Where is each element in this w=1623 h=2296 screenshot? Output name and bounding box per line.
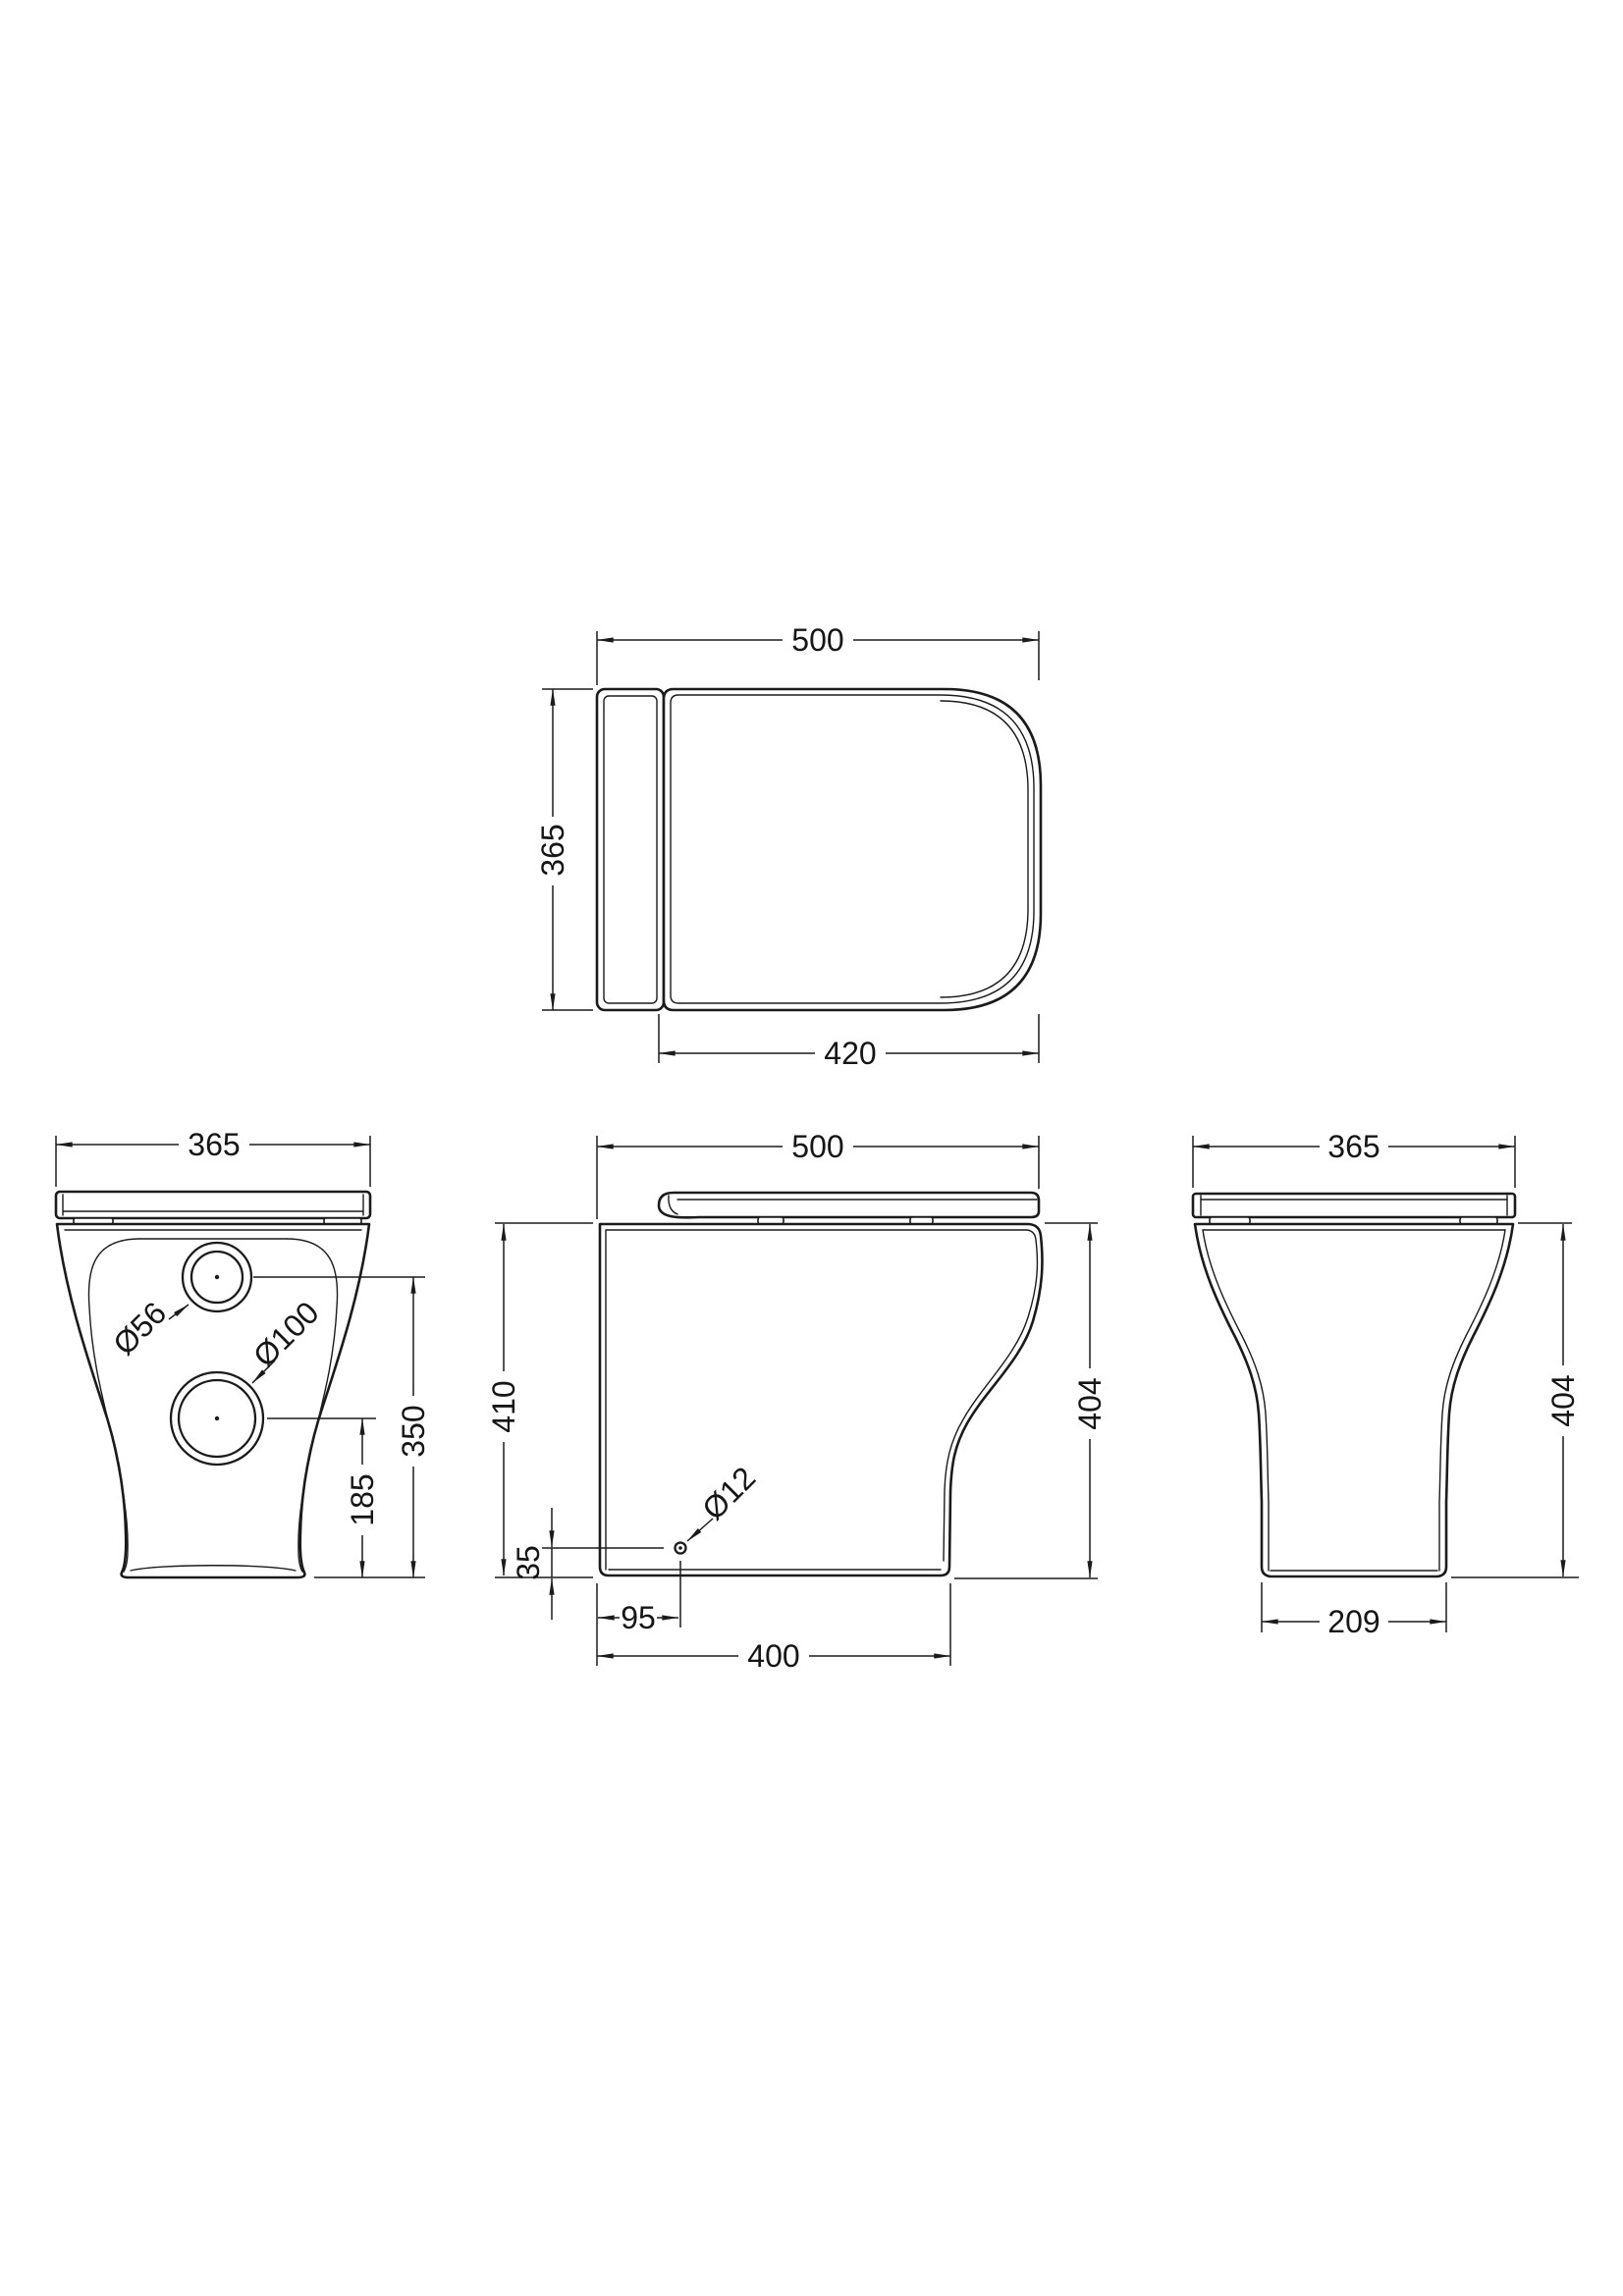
dim-front-width: 365: [1193, 1129, 1515, 1188]
inlet-center-dot: [215, 1275, 219, 1279]
side-view-object: [600, 1193, 1042, 1575]
dim-label-top-seat: 420: [824, 1036, 876, 1071]
dim-label-front-base: 209: [1327, 1604, 1380, 1639]
dim-label-side-hole-back: 95: [621, 1600, 656, 1635]
side-view: 500 410 404 Ø12 35: [486, 1129, 1108, 1674]
dim-top-seat: 420: [659, 1014, 1039, 1071]
dim-label-side-base: 400: [747, 1638, 799, 1674]
dim-label-rear-inlet-height: 350: [396, 1405, 431, 1457]
dim-label-top-depth: 365: [535, 824, 570, 876]
rear-seat-edge: [56, 1192, 370, 1218]
dim-label-side-depth: 500: [791, 1129, 843, 1164]
dim-rear-width: 365: [56, 1127, 370, 1187]
rear-view-object: [56, 1192, 370, 1577]
dim-label-front-width: 365: [1327, 1129, 1380, 1164]
front-pan-body: [1195, 1224, 1513, 1576]
dim-side-height: 410: [486, 1223, 593, 1577]
dim-top-depth: 365: [535, 689, 593, 1010]
front-view: 365 404 209: [1193, 1129, 1581, 1639]
fixing-hole-dot: [678, 1546, 682, 1550]
front-view-object: [1193, 1194, 1515, 1576]
side-seat-lid: [659, 1193, 1039, 1217]
top-view-object: [597, 689, 1041, 1010]
outlet-center-dot: [215, 1416, 219, 1420]
rear-view: 365 Ø56 Ø100 350 185: [56, 1127, 431, 1577]
dim-label-side-height: 410: [486, 1380, 521, 1432]
technical-drawing-page: 500 365 420: [0, 0, 1623, 2296]
dim-label-front-pan-height: 404: [1545, 1374, 1581, 1426]
top-view: 500 365 420: [535, 622, 1041, 1071]
dim-label-side-hole-up: 35: [511, 1545, 546, 1580]
seat-back-plate: [597, 689, 664, 1010]
dim-front-base: 209: [1262, 1582, 1446, 1639]
front-seat-edge: [1193, 1194, 1515, 1217]
toilet-pan-drawing: 500 365 420: [0, 0, 1623, 2296]
dim-label-top-width: 500: [791, 622, 843, 658]
dim-top-width: 500: [597, 622, 1039, 685]
dim-label-side-pan-height: 404: [1072, 1377, 1108, 1429]
dim-label-rear-width: 365: [188, 1127, 240, 1162]
seat-lid-plan: [664, 689, 1041, 1010]
dim-label-rear-outlet-height: 185: [345, 1473, 380, 1525]
